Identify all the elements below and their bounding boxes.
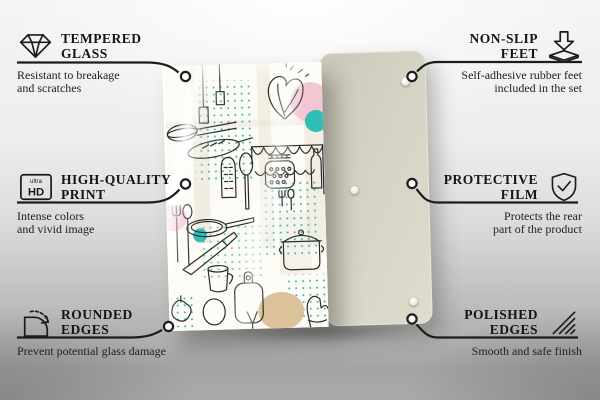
callout-subtitle: Self-adhesive rubber feet included in th…	[461, 69, 582, 95]
callout-subtitle: Prevent potential glass damage	[17, 345, 166, 358]
title-line: HIGH-QUALITY	[61, 172, 171, 187]
callout-subtitle: Protects the rear part of the product	[444, 210, 582, 236]
title-line: TEMPERED	[61, 31, 142, 46]
subtitle-line: part of the product	[444, 223, 582, 236]
kitchen-doodle-print	[162, 62, 328, 331]
rounded-corner-icon	[17, 306, 54, 338]
subtitle-line: and vivid image	[17, 223, 171, 236]
ultra-hd-icon: ultra HD	[17, 171, 54, 203]
title-line: EDGES	[61, 322, 133, 337]
polished-edges-icon	[545, 306, 582, 338]
callout-title: POLISHED EDGES	[464, 307, 538, 337]
callout-tempered-glass: TEMPERED GLASS Resistant to breakage and…	[17, 30, 142, 95]
title-line: POLISHED	[464, 307, 538, 322]
callout-high-quality-print: ultra HD HIGH-QUALITY PRINT Intense colo…	[17, 171, 171, 236]
callout-title: ROUNDED EDGES	[61, 307, 133, 337]
shield-check-icon	[545, 171, 582, 203]
title-line: PROTECTIVE	[444, 172, 538, 187]
callout-title: PROTECTIVE FILM	[444, 172, 538, 202]
title-line: ROUNDED	[61, 307, 133, 322]
callout-polished-edges: POLISHED EDGES Smooth and safe finish	[464, 306, 582, 358]
callout-rounded-edges: ROUNDED EDGES Prevent potential glass da…	[17, 306, 166, 358]
rubber-foot	[409, 297, 418, 306]
callout-title: TEMPERED GLASS	[61, 31, 142, 61]
hd-label: HD	[27, 187, 43, 199]
subtitle-line: included in the set	[461, 82, 582, 95]
title-line: FEET	[469, 46, 538, 61]
subtitle-line: Prevent potential glass damage	[17, 345, 166, 358]
title-line: NON-SLIP	[469, 31, 538, 46]
ultra-label: ultra	[30, 178, 43, 185]
callout-non-slip-feet: NON-SLIP FEET Self-adhesive rubber feet …	[461, 30, 582, 95]
title-line: GLASS	[61, 46, 142, 61]
subtitle-line: and scratches	[17, 82, 142, 95]
title-line: EDGES	[464, 322, 538, 337]
diamond-icon	[17, 30, 54, 62]
callout-protective-film: PROTECTIVE FILM Protects the rear part o…	[444, 171, 582, 236]
board-front-panel	[162, 62, 328, 331]
title-line: FILM	[444, 187, 538, 202]
callout-subtitle: Smooth and safe finish	[464, 345, 582, 358]
subtitle-line: Smooth and safe finish	[464, 345, 582, 358]
callout-title: NON-SLIP FEET	[469, 31, 538, 61]
rubber-foot	[401, 77, 410, 86]
title-line: PRINT	[61, 187, 171, 202]
board-back-panel	[319, 51, 433, 327]
callout-subtitle: Intense colors and vivid image	[17, 210, 171, 236]
callout-subtitle: Resistant to breakage and scratches	[17, 69, 142, 95]
rubber-foot	[350, 185, 359, 194]
product-feature-showcase: TEMPERED GLASS Resistant to breakage and…	[0, 0, 600, 400]
non-slip-feet-icon	[545, 30, 582, 62]
callout-title: HIGH-QUALITY PRINT	[61, 172, 171, 202]
